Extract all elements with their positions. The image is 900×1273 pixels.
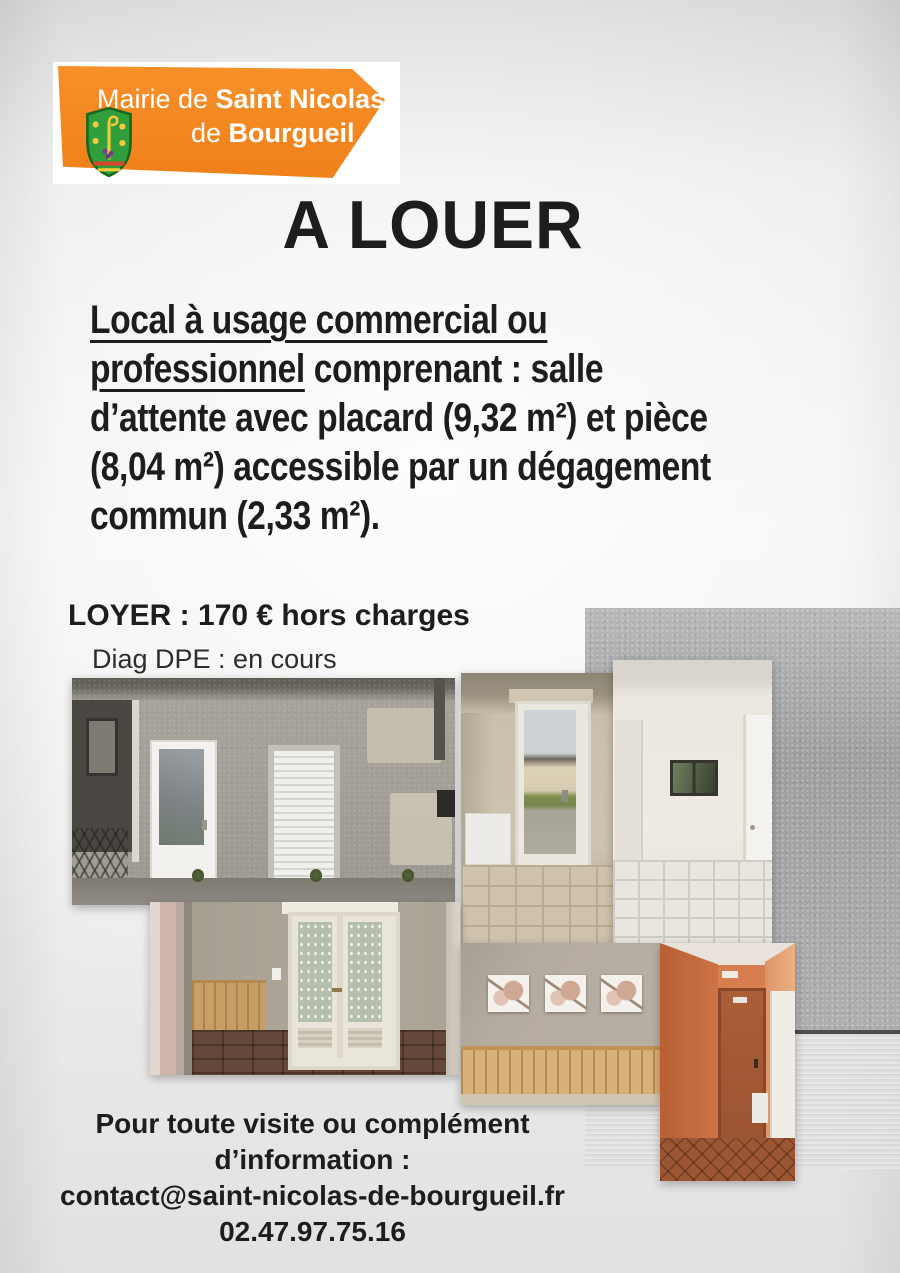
door-plaque xyxy=(733,997,747,1003)
contact-block: Pour toute visite ou complément d’inform… xyxy=(0,1106,625,1250)
logo-town-line1-bold: Saint Nicolas xyxy=(216,84,386,114)
light-switch xyxy=(272,968,281,980)
flower-print xyxy=(488,975,529,1012)
photo-double-doors-room xyxy=(150,902,460,1075)
description-line: professionnel comprenant : salle xyxy=(90,345,711,394)
flower-art xyxy=(545,975,586,1012)
flower-art xyxy=(488,975,529,1012)
logo-town-line1: Mairie de Saint Nicolas xyxy=(97,84,385,115)
property-description: Local à usage commercial ou professionne… xyxy=(90,296,829,541)
logo-town-line2-light: de xyxy=(191,118,229,148)
radiator xyxy=(752,1093,768,1123)
photo-artwork-wall xyxy=(461,943,660,1105)
roller-shutter xyxy=(274,751,334,885)
pine-wainscot xyxy=(461,1046,660,1098)
grass-tuft xyxy=(402,869,414,882)
description-line: d’attente avec placard (9,32 m²) et pièc… xyxy=(90,394,711,443)
downpipe xyxy=(132,700,139,862)
rent-line: LOYER : 170 € hors charges xyxy=(68,599,470,633)
flower-print xyxy=(545,975,586,1012)
double-french-doors xyxy=(288,912,400,1070)
tiled-floor xyxy=(461,865,613,945)
stone-patch xyxy=(367,708,442,763)
description-line: (8,04 m²) accessible par un dégagement xyxy=(90,443,711,492)
utility-box xyxy=(437,790,455,817)
dpe-line: Diag DPE : en cours xyxy=(92,644,337,675)
door-handle xyxy=(332,988,342,992)
coat-of-arms-icon xyxy=(83,106,135,178)
grass-tuft xyxy=(192,869,204,882)
photo-entrance-interior xyxy=(461,673,613,945)
contact-intro-line: Pour toute visite ou complément xyxy=(0,1106,625,1142)
description-line: Local à usage commercial ou xyxy=(90,296,711,345)
concrete-path xyxy=(72,878,455,905)
facade-window-frame xyxy=(268,745,340,891)
interior-window xyxy=(670,760,718,796)
frosted-glass-panel xyxy=(348,922,382,1022)
page-title: A LOUER xyxy=(13,186,853,264)
contact-phone: 02.47.97.75.16 xyxy=(0,1214,625,1250)
logo-town-line2-bold: Bourgueil xyxy=(229,118,355,148)
door-handle xyxy=(750,825,755,830)
contact-info-line: d’information : xyxy=(0,1142,625,1178)
terracotta-floor xyxy=(660,1138,795,1181)
door-frame-edge xyxy=(150,902,192,1075)
floor-strip xyxy=(461,1094,660,1105)
poster-page: { "colors": { "accent_orange": "#f0801a"… xyxy=(0,0,900,1273)
door-handle xyxy=(562,790,568,802)
photo-waiting-room xyxy=(613,660,772,945)
contact-email: contact@saint-nicolas-de-bourgueil.fr xyxy=(0,1178,625,1214)
glazed-entry-door xyxy=(515,701,591,887)
grass-tuft xyxy=(310,869,322,882)
hallway-white-door xyxy=(770,991,795,1151)
tiled-floor xyxy=(613,860,772,945)
frosted-glass-panel xyxy=(298,922,332,1022)
porch-window xyxy=(86,718,118,776)
photo-orange-hallway xyxy=(660,943,795,1181)
flower-print xyxy=(601,975,642,1012)
logo-town-line2: de Bourgueil xyxy=(191,118,355,149)
radiator xyxy=(465,813,511,865)
door-glass xyxy=(159,749,204,845)
flower-art xyxy=(601,975,642,1012)
door-handle xyxy=(202,820,207,830)
description-line: commun (2,33 m²). xyxy=(90,492,711,541)
photo-facade-exterior xyxy=(72,678,455,905)
door-handle xyxy=(754,1059,758,1068)
wall-pipe xyxy=(434,678,445,760)
facade-entry-door xyxy=(150,740,217,894)
wall-vent xyxy=(722,971,738,978)
door-center-stile xyxy=(337,916,343,1058)
mairie-logo: Mairie de Saint Nicolas de Bourgueil xyxy=(53,62,400,184)
door-vent-panel xyxy=(298,1028,332,1048)
door-glass-view xyxy=(524,710,576,854)
door-vent-panel xyxy=(348,1028,382,1048)
closet-door xyxy=(615,720,643,872)
doorway-edge xyxy=(446,902,460,1075)
